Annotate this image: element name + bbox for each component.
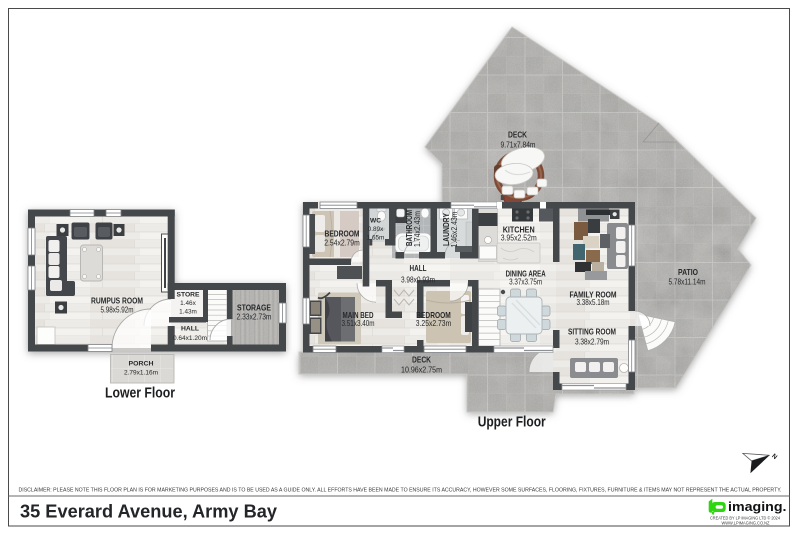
svg-text:3.95x2.52m: 3.95x2.52m — [501, 234, 537, 243]
svg-text:imaging.: imaging. — [728, 499, 787, 514]
svg-text:BEDROOM: BEDROOM — [325, 230, 360, 239]
svg-text:1.43m: 1.43m — [179, 309, 197, 316]
svg-text:Upper Floor: Upper Floor — [478, 414, 546, 431]
svg-text:3.51x3.40m: 3.51x3.40m — [342, 319, 375, 328]
svg-text:2.54x2.79m: 2.54x2.79m — [324, 239, 360, 248]
svg-text:3.38x2.79m: 3.38x2.79m — [575, 338, 609, 347]
svg-text:0.89x: 0.89x — [368, 226, 384, 233]
svg-text:SITTING ROOM: SITTING ROOM — [568, 328, 616, 337]
svg-text:DECK: DECK — [508, 131, 527, 140]
svg-text:STORE: STORE — [177, 292, 201, 299]
svg-text:PATIO: PATIO — [678, 268, 699, 277]
svg-text:5.98x5.92m: 5.98x5.92m — [101, 306, 134, 315]
svg-text:PORCH: PORCH — [129, 361, 154, 368]
svg-text:2.33x2.73m: 2.33x2.73m — [237, 313, 272, 322]
svg-text:DISCLAIMER: PLEASE NOTE THIS F: DISCLAIMER: PLEASE NOTE THIS FLOOR PLAN … — [19, 488, 782, 494]
svg-text:HALL: HALL — [410, 264, 427, 273]
svg-text:WWW.LPIMAGING.CO.NZ: WWW.LPIMAGING.CO.NZ — [722, 521, 770, 526]
svg-text:35 Everard Avenue, Army Bay: 35 Everard Avenue, Army Bay — [20, 501, 278, 522]
svg-text:5.78x11.14m: 5.78x11.14m — [669, 278, 706, 287]
svg-text:CREATED BY LP IMAGING LTD © 20: CREATED BY LP IMAGING LTD © 2024 — [710, 514, 780, 520]
svg-text:1.65m: 1.65m — [367, 235, 385, 242]
svg-text:2.79x1.16m: 2.79x1.16m — [124, 370, 158, 377]
svg-text:0.64x1.20m: 0.64x1.20m — [173, 335, 207, 342]
svg-text:3.25x2.73m: 3.25x2.73m — [416, 319, 452, 328]
svg-text:DECK: DECK — [412, 356, 431, 365]
svg-text:10.96x2.75m: 10.96x2.75m — [401, 366, 442, 375]
svg-text:3.38x5.18m: 3.38x5.18m — [577, 298, 610, 307]
svg-text:1.46x: 1.46x — [180, 300, 196, 307]
svg-text:3.98x0.93m: 3.98x0.93m — [401, 275, 435, 284]
svg-text:3.37x3.75m: 3.37x3.75m — [509, 278, 542, 287]
svg-text:STORAGE: STORAGE — [237, 304, 271, 313]
svg-text:RUMPUS ROOM: RUMPUS ROOM — [91, 297, 143, 306]
svg-text:1.74x2.43m: 1.74x2.43m — [413, 211, 422, 247]
svg-text:9.71x7.84m: 9.71x7.84m — [501, 141, 536, 150]
svg-text:Lower Floor: Lower Floor — [105, 385, 175, 402]
svg-text:WC: WC — [370, 217, 381, 224]
svg-text:1.46x2.43m: 1.46x2.43m — [450, 212, 459, 248]
svg-text:HALL: HALL — [181, 326, 199, 333]
